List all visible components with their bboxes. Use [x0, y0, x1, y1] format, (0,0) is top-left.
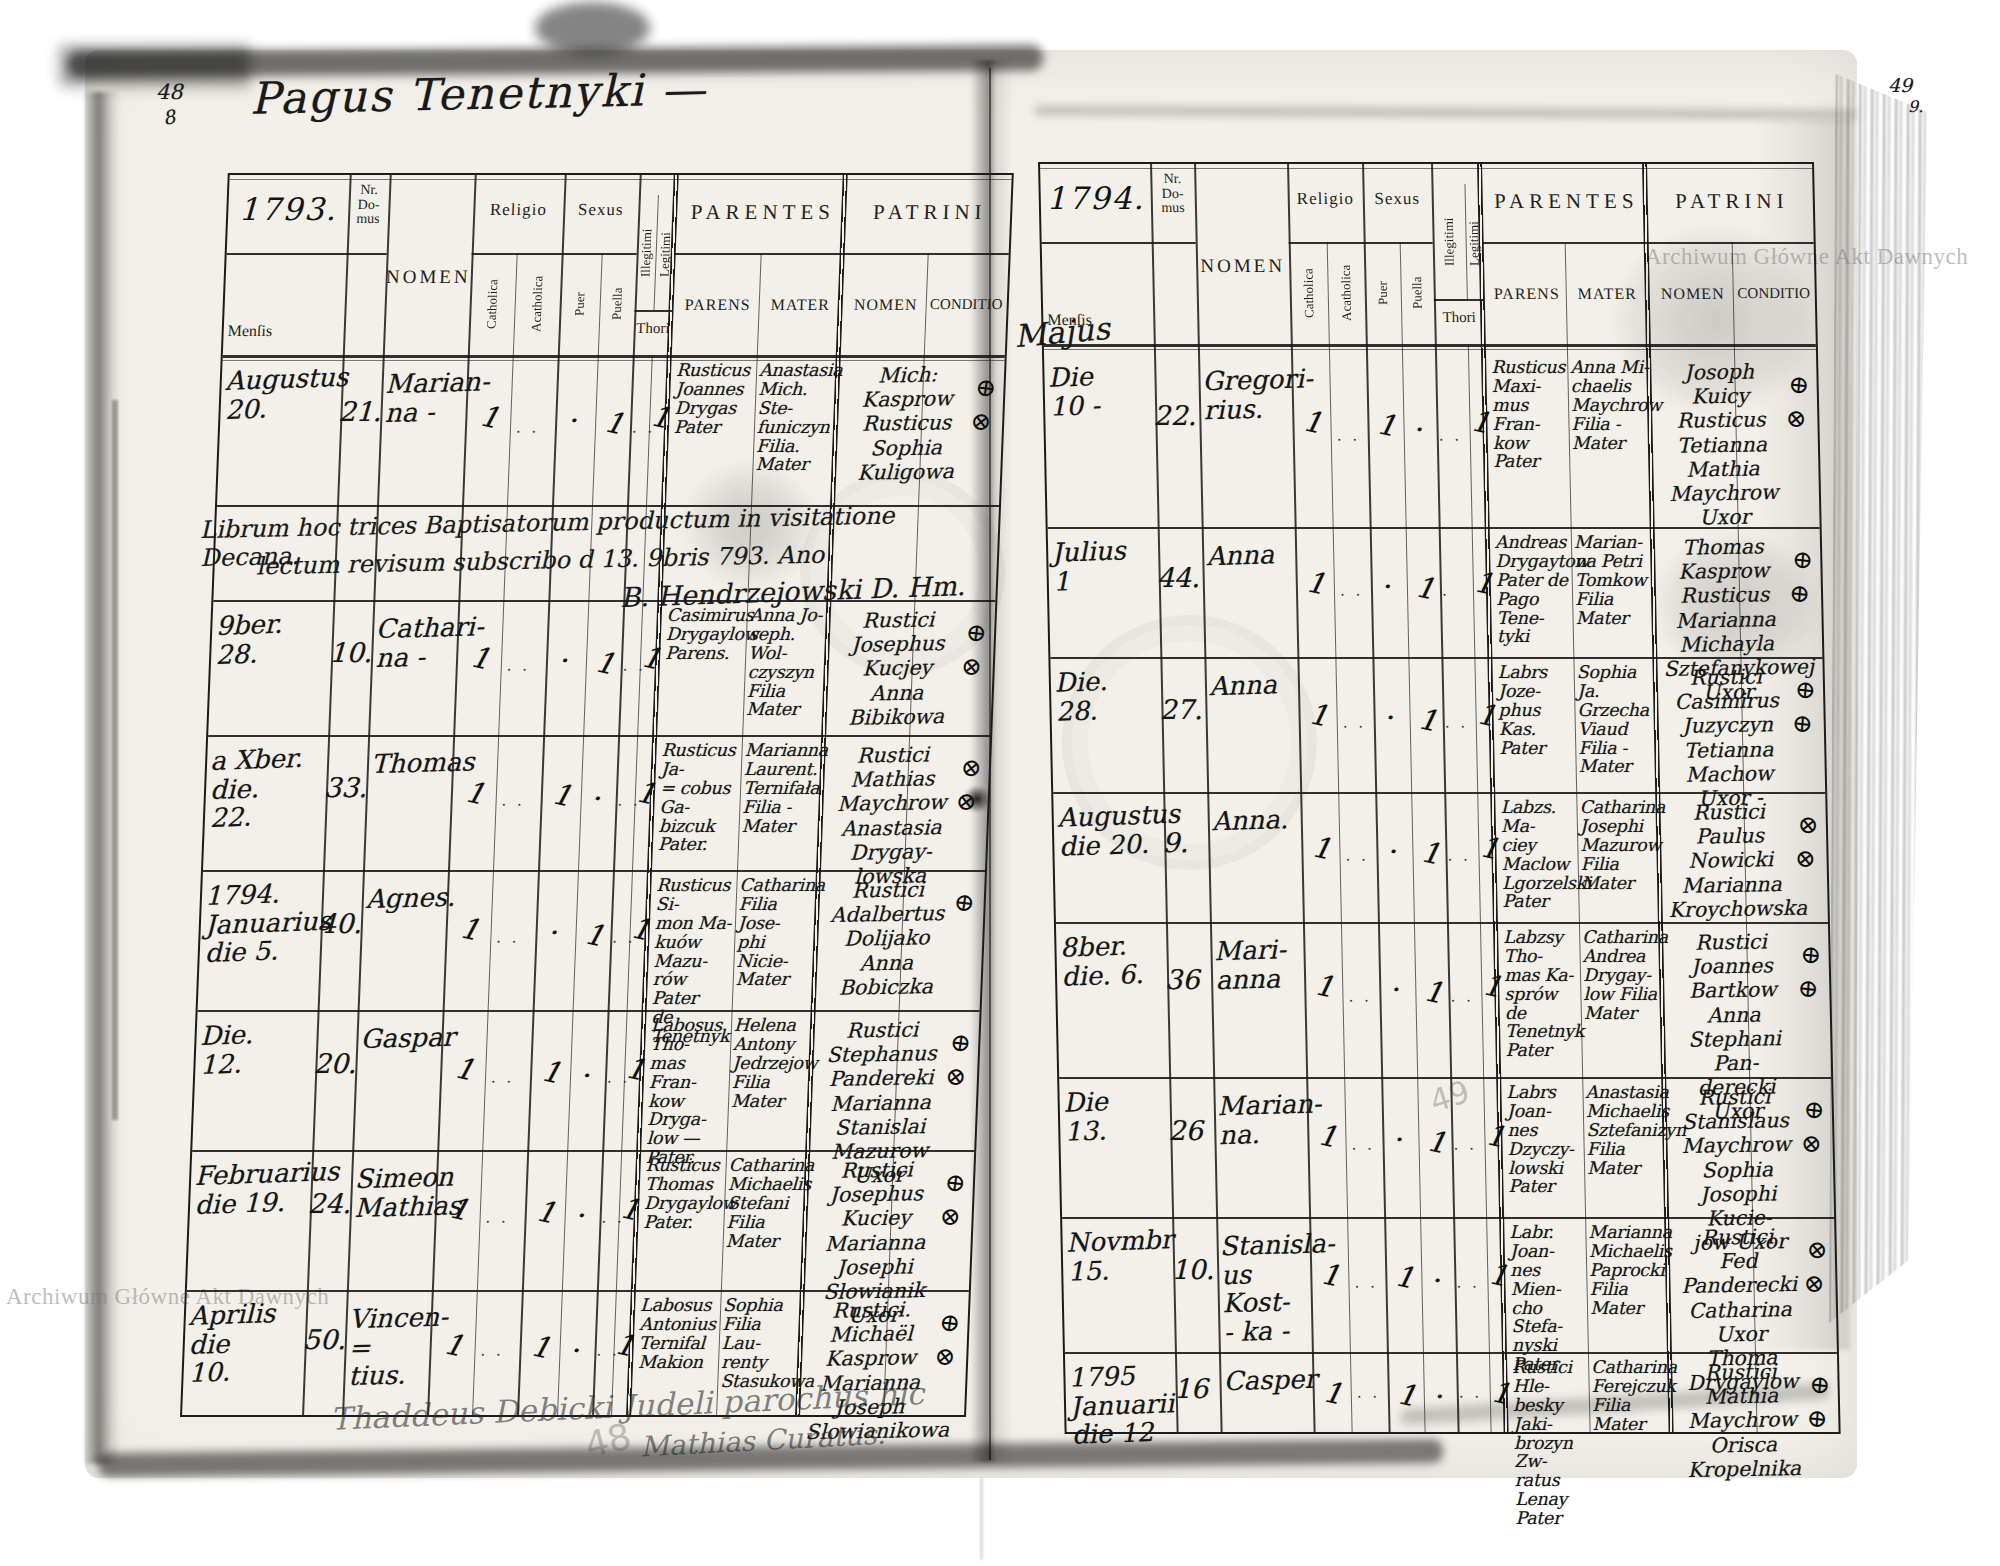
- entry-tick-puer: 1: [528, 1328, 554, 1365]
- entry-mater: Helena Antony Jedrzejow Filia Mater: [731, 1016, 816, 1110]
- entry-mensis: Die 10 -: [1047, 360, 1156, 421]
- entry-dots-thori: ·: [1442, 586, 1450, 604]
- entry-conditio-marks: ⊕ ⊕: [1805, 1367, 1832, 1436]
- grid-vline: [1431, 164, 1459, 1432]
- entry-mensis: Augustus die 20.: [1056, 800, 1165, 861]
- entry-dots-acatholica: · ·: [1337, 431, 1361, 449]
- header-label-nr-domus: Nr. Do- mus: [349, 183, 389, 227]
- entry-nomen: Simeon Mathias: [354, 1163, 440, 1222]
- header-label-acatholica: Acatholica: [513, 257, 562, 351]
- entry-mater: Sophia Ja. Grzecha Viaud Filia - Mater: [1576, 663, 1659, 776]
- entry-tick-puella: ·: [565, 1332, 582, 1367]
- entry-tick-legitimi: 1: [633, 774, 659, 811]
- grid-hline: [1042, 242, 1196, 244]
- entry-dots-acatholica: · ·: [491, 1073, 515, 1091]
- entry-parens: Labzs. Ma- ciey Maclow Lgorzelski Pater: [1500, 798, 1578, 911]
- entry-tick-puer: 1: [1392, 1259, 1417, 1296]
- entry-parens: Casimirus Drygaylow Parens.: [665, 606, 747, 663]
- scanned-register-spread: 48 8 49 9. Pagus Tenetnyki — Archiwum Gł…: [0, 0, 2000, 1566]
- entry-mensis: Die. 28.: [1054, 665, 1163, 726]
- entry-conditio-marks: ⊕ ⊗: [1784, 367, 1811, 436]
- grid-hline: [227, 253, 387, 255]
- folio-number-right-sub: 9.: [1908, 97, 1923, 116]
- entry-tick-puella: ·: [1427, 1262, 1442, 1297]
- entry-mater: Anna Jo- seph. Wol- czyszyn Filia Mater: [746, 606, 831, 719]
- entry-mater: Marianna Laurent. Ternifała Filia - Mate…: [741, 741, 826, 835]
- entry-tick-legitimi: 1: [648, 398, 674, 435]
- grid-hline: [1040, 168, 1812, 169]
- entry-dots-thori: · ·: [1459, 1388, 1483, 1406]
- entry-patrini: Rustici Paulus Nowicki Marianna Kroychow…: [1664, 799, 1797, 922]
- entry-tick-legitimi: 1: [1472, 564, 1497, 601]
- entry-tick-catholica: 1: [1312, 967, 1337, 1004]
- grid-hline: [634, 310, 672, 312]
- entry-tick-puella: 1: [601, 404, 627, 441]
- page-title-pagus: Pagus Tenetnyki —: [250, 63, 708, 124]
- entry-patrini: Rustici Adalbertus Dolijako Anna Bobiczk…: [822, 877, 952, 1000]
- entry-conditio-marks: ⊕ ⊕: [1791, 672, 1818, 741]
- header-year: 1793.: [228, 191, 349, 227]
- entry-tick-puer: ·: [1386, 971, 1401, 1006]
- entry-tick-puella: 1: [1424, 1123, 1449, 1160]
- header-label-patrini-nomen: NOMEN: [1653, 286, 1733, 303]
- entry-conditio-marks: ⊕ ⊗: [968, 370, 998, 439]
- entry-conditio-marks: ⊕ ⊗: [959, 615, 989, 684]
- entry-dots-acatholica: · ·: [506, 661, 530, 679]
- entry-tick-puer: 1: [538, 1053, 564, 1090]
- entry-mater: Sophia Filia Lau- renty Stasukowa: [720, 1296, 805, 1390]
- entry-tick-puer: 1: [1395, 1376, 1420, 1413]
- entry-patrini: Rustici Josephus Kucjey Anna Bibikowa: [832, 607, 962, 730]
- entry-dots-thori: · ·: [1456, 1278, 1480, 1296]
- header-label-mensis: Menſis: [227, 323, 340, 340]
- entry-tick-puer: ·: [563, 402, 580, 437]
- entry-tick-legitimi: 1: [1483, 1117, 1508, 1154]
- entry-tick-catholica: 1: [467, 639, 493, 676]
- entry-nomen: Anna: [1206, 540, 1300, 571]
- header-label-religio: Religio: [473, 201, 564, 219]
- folio-number-left: 48: [156, 80, 183, 104]
- entry-dots-acatholica: · ·: [1354, 1278, 1378, 1296]
- entry-tick-puella: 1: [1415, 701, 1440, 738]
- entry-tick-puella: 1: [1412, 570, 1437, 607]
- entry-mensis: Februarius die 19.: [195, 1158, 311, 1219]
- entry-mater: Marianna Michaelis Paprocki Filia Mater: [1588, 1223, 1671, 1317]
- entry-parens: Labosus Antonius Ternifal Makion: [638, 1296, 721, 1372]
- grid-hline: [198, 1010, 980, 1012]
- entry-tick-puer: ·: [1389, 1121, 1404, 1156]
- entry-dots-thori: · ·: [1439, 431, 1463, 449]
- grid-hline: [675, 253, 1009, 255]
- entry-mater: Catharina Ferejczuk Filia Mater: [1591, 1358, 1674, 1434]
- header-label-parentes: PARENTES: [1486, 190, 1647, 212]
- entry-mensis: Julius 1: [1051, 535, 1160, 596]
- entry-tick-puer: ·: [554, 643, 571, 678]
- entry-nomen: Vincen- = tius.: [348, 1303, 434, 1391]
- entry-dots-acatholica: · ·: [1340, 586, 1364, 604]
- header-label-legitimi: Legitimi: [1465, 190, 1484, 298]
- entry-tick-puella: ·: [576, 1057, 593, 1092]
- entry-parens: Labrs Joze- phus Kas. Pater: [1497, 663, 1575, 757]
- entry-tick-catholica: 1: [451, 1050, 477, 1087]
- entry-parens: Labr. Joan- nes Mien- cho Stefa- nyski P…: [1509, 1223, 1588, 1374]
- entry-tick-legitimi: 1: [1475, 696, 1500, 733]
- entry-mater: Anastasia Mich. Ste- funiczyn Filia. Mat…: [755, 361, 840, 474]
- entry-parens: Rusticus Joannes Drygas Pater: [674, 361, 757, 437]
- entry-tick-legitimi: 1: [622, 1050, 648, 1087]
- header-label-mater: MATER: [1566, 286, 1649, 303]
- entry-mater: Catharina Filia Jose- phi Nicie- Mater: [735, 876, 820, 989]
- entry-conditio-marks: ⊕: [951, 885, 977, 921]
- entry-nomen: Thomas: [371, 748, 456, 779]
- entry-tick-catholica: 1: [476, 398, 502, 435]
- entry-dots-thori: · ·: [1450, 992, 1474, 1010]
- entry-parens: Labrs Joan- nes Dzyczy- lowski Pater: [1506, 1083, 1584, 1196]
- entry-tick-puer: ·: [1381, 700, 1396, 735]
- entry-conditio-marks: ⊗ ⊗: [1802, 1232, 1829, 1301]
- entry-nomen: Gaspar: [360, 1023, 445, 1054]
- entry-dots-acatholica: · ·: [485, 1213, 509, 1231]
- entry-conditio-marks: ⊕ ⊕: [1796, 937, 1823, 1006]
- header-label-catholica: Catholica: [468, 257, 517, 351]
- entry-tick-legitimi: 1: [1489, 1374, 1514, 1411]
- entry-mensis: a Xber. die. 22.: [210, 743, 326, 833]
- header-label-illegitimi: Illegitimi: [1432, 186, 1467, 298]
- entry-nomen: Agnes.: [366, 883, 451, 914]
- entry-tick-legitimi: 1: [1480, 967, 1505, 1004]
- entry-conditio-marks: ⊕ ⊕: [1788, 542, 1815, 611]
- entry-tick-puer: 1: [549, 777, 575, 814]
- entry-tick-catholica: 1: [462, 774, 488, 811]
- entry-dots-acatholica: · ·: [1343, 718, 1367, 736]
- entry-mensis: Novmbr 15.: [1065, 1225, 1174, 1286]
- header-label-parentes: PARENTES: [680, 201, 846, 223]
- header-label-patrini: PATRINI: [1651, 190, 1813, 212]
- entry-nomen: Marian- na -: [385, 368, 471, 427]
- header-label-parens: PARENS: [1488, 286, 1566, 303]
- header-label-conditio: CONDITIO: [1733, 286, 1815, 302]
- entry-mensis: Die 13.: [1062, 1085, 1171, 1146]
- entry-tick-catholica: 1: [1309, 829, 1334, 866]
- left-register-table: 1793.Nr. Do- musReligioSexusPARENTESPATR…: [180, 173, 1014, 1417]
- entry-mater: Catharina Andrea Drygay- low Filia Mater: [1582, 928, 1665, 1022]
- entry-mensis: 1795 Januarii die 12: [1068, 1360, 1179, 1449]
- header-year: 1794.: [1040, 180, 1151, 216]
- entry-tick-catholica: 1: [1307, 696, 1332, 733]
- entry-parens: Labosus Tho- mas Fran- kow Dryga- low — …: [646, 1016, 732, 1167]
- grid-vline: [1194, 164, 1222, 1432]
- entry-nomen: Mari- anna: [1214, 935, 1310, 995]
- header-label-mater: MATER: [758, 297, 842, 314]
- entry-tick-puer: ·: [544, 914, 561, 949]
- entry-mensis: Die. 12.: [200, 1018, 316, 1079]
- entry-mater: Anastasia Michaelis Sztefanizyn Filia Ma…: [1585, 1083, 1668, 1177]
- paper-crease: [980, 1478, 983, 1560]
- entry-tick-legitimi: 1: [612, 1326, 638, 1363]
- header-label-puella: Puella: [598, 257, 637, 351]
- entry-nomen: Casper: [1223, 1365, 1317, 1396]
- entry-tick-catholica: 1: [1321, 1374, 1346, 1411]
- entry-conditio-marks: ⊕ ⊗: [1799, 1092, 1826, 1161]
- entry-mensis: Augustus 20.: [225, 363, 341, 424]
- header-label-sexus: Sexus: [1363, 190, 1432, 208]
- book-top-tear-mark: [535, 2, 650, 54]
- grid-hline: [230, 179, 1012, 180]
- entry-tick-puella: ·: [586, 780, 603, 815]
- grid-vline: [1362, 164, 1390, 1432]
- entry-tick-catholica: 1: [1304, 564, 1329, 601]
- header-label-thori: Thori: [627, 321, 678, 337]
- entry-conditio-marks: ⊗ ⊗: [1793, 807, 1820, 876]
- entry-dots-acatholica: · ·: [501, 796, 525, 814]
- entry-dots-acatholica: · ·: [496, 933, 520, 951]
- entry-mater: Catharina Michaelis Stefani Filia Mater: [725, 1156, 810, 1250]
- header-label-patrini-nomen: NOMEN: [845, 297, 926, 314]
- entry-nomen: Gregori- rius.: [1202, 365, 1298, 425]
- header-label-sexus: Sexus: [563, 201, 639, 219]
- right-register-table: 1794.Nr. Do- musReligioSexusPARENTESPATR…: [1038, 162, 1841, 1434]
- header-label-nomen: NOMEN: [385, 267, 471, 287]
- entry-parens: Rusticus Thomas Drygaylow Pater.: [643, 1156, 726, 1232]
- grid-hline: [1434, 299, 1484, 301]
- folio-number-right: 49: [1888, 74, 1912, 96]
- entry-patrini: Rustici Mathias Maychrow Anastasia Dryga…: [827, 742, 957, 889]
- entry-conditio-marks: ⊗ ⊗: [954, 750, 984, 819]
- entry-mensis: 9ber. 28.: [216, 608, 332, 669]
- grid-vline: [557, 253, 603, 1415]
- entry-nomen: Anna.: [1211, 805, 1305, 836]
- entry-tick-puella: 1: [1421, 973, 1446, 1010]
- entry-patrini: Josoph Kuicy Rusticus Tetianna Mathia Ma…: [1655, 359, 1789, 531]
- entry-parens: Rusticus Ja- = cobus Ga- bizcuk Pater.: [658, 741, 742, 854]
- entry-tick-legitimi: 1: [638, 639, 664, 676]
- entry-dots-acatholica: · ·: [516, 423, 540, 441]
- entry-nomen: Stanisla- us Kost- - ka -: [1219, 1230, 1317, 1347]
- entry-mater: Marian- na Petri Tomkow Filia Mater: [1574, 533, 1657, 627]
- entry-conditio-marks: ⊕ ⊗: [943, 1025, 973, 1094]
- entry-tick-puella: 1: [1418, 835, 1443, 872]
- grid-hline: [1289, 242, 1433, 244]
- grid-hline: [223, 355, 1005, 358]
- entry-mensis: 1794. Januarius die 5.: [205, 878, 321, 968]
- entry-mensis: 8ber. die. 6.: [1059, 930, 1168, 991]
- grid-hline: [1056, 922, 1828, 924]
- entry-tick-catholica: 1: [1318, 1256, 1343, 1293]
- entry-tick-legitimi: 1: [1477, 829, 1502, 866]
- header-label-nr-domus: Nr. Do- mus: [1151, 172, 1194, 216]
- entry-tick-catholica: 1: [456, 910, 482, 947]
- entry-tick-puer: ·: [1378, 568, 1393, 603]
- entry-tick-puella: 1: [592, 644, 618, 681]
- entry-dots-acatholica: · ·: [1351, 1140, 1375, 1158]
- header-label-parens: PARENS: [676, 297, 759, 314]
- entry-tick-legitimi: 1: [617, 1190, 643, 1227]
- header-label-puella: Puella: [1400, 246, 1435, 340]
- entry-tick-puella: ·: [1429, 1379, 1444, 1414]
- entry-tick-catholica: 1: [1315, 1117, 1340, 1154]
- entry-nomen: Cathari- na -: [375, 613, 461, 672]
- entry-tick-puer: 1: [1374, 406, 1399, 443]
- entry-mater: Anna Mi- chaelis Maychrow Filia - Mater: [1570, 358, 1653, 452]
- entry-patrini: Rustici Casimirus Juzyczyn Tetianna Mach…: [1661, 664, 1795, 811]
- entry-dots-acatholica: · ·: [1357, 1388, 1381, 1406]
- grid-hline: [223, 360, 1005, 361]
- entry-tick-legitimi: 1: [628, 910, 654, 947]
- entry-tick-catholica: 1: [1300, 403, 1325, 440]
- entry-dots-acatholica: · ·: [1345, 851, 1369, 869]
- entry-dots-thori: · ·: [1445, 718, 1469, 736]
- entry-parens: Rusticus Maxi- mus Fran- kow Pater: [1491, 358, 1569, 471]
- header-label-acatholica: Acatholica: [1327, 246, 1366, 340]
- entry-tick-puella: 1: [581, 916, 607, 953]
- entry-mensis: Aprilis die 10.: [189, 1298, 305, 1388]
- entry-dots-acatholica: · ·: [1348, 992, 1372, 1010]
- entry-dots-thori: · ·: [1447, 851, 1471, 869]
- entry-parens: Andreas Drygaytow Pater de Pago Tene- ty…: [1495, 533, 1573, 646]
- entry-nomen: Marian- na.: [1217, 1090, 1313, 1150]
- entry-parens: Labzsy Tho- mas Ka- sprów de Tenetnyk Pa…: [1503, 928, 1582, 1060]
- header-label-nomen: NOMEN: [1196, 256, 1289, 276]
- entry-mater: Catharina Josephi Mazurow Filia Mater: [1579, 798, 1662, 892]
- header-label-catholica: Catholica: [1289, 246, 1329, 340]
- grid-hline: [472, 253, 637, 255]
- grid-hline: [1483, 242, 1814, 244]
- entry-tick-puella: ·: [1409, 411, 1424, 446]
- header-label-thori: Thori: [1428, 310, 1490, 326]
- grid-hline: [1044, 349, 1816, 350]
- entry-patrini: Rustici Mathia Maychrow Orisca Kropelnik…: [1676, 1359, 1809, 1482]
- entry-tick-puer: ·: [1383, 833, 1398, 868]
- entry-tick-legitimi: 1: [1486, 1256, 1511, 1293]
- header-label-religio: Religio: [1288, 190, 1363, 208]
- entry-dots-thori: · ·: [1453, 1140, 1477, 1158]
- grid-hline: [208, 735, 990, 737]
- header-label-patrini: PATRINI: [849, 201, 1011, 223]
- header-label-puer: Puer: [1364, 246, 1402, 340]
- entry-patrini: Mich: Kasprow Rusticus Sophia Kuligowa: [842, 362, 972, 485]
- entry-tick-puer: 1: [533, 1193, 559, 1230]
- entry-parens: Rustici Hle- besky Jaki- brozyn Zw- ratu…: [1512, 1358, 1592, 1528]
- entry-tick-puella: ·: [570, 1197, 587, 1232]
- entry-dots-acatholica: · ·: [480, 1346, 504, 1364]
- header-label-conditio: CONDITIO: [925, 297, 1007, 313]
- header-label-puer: Puer: [558, 257, 602, 351]
- entry-tick-legitimi: 1: [1468, 403, 1493, 440]
- entry-nomen: Anna: [1208, 670, 1302, 701]
- grid-hline: [1044, 344, 1816, 347]
